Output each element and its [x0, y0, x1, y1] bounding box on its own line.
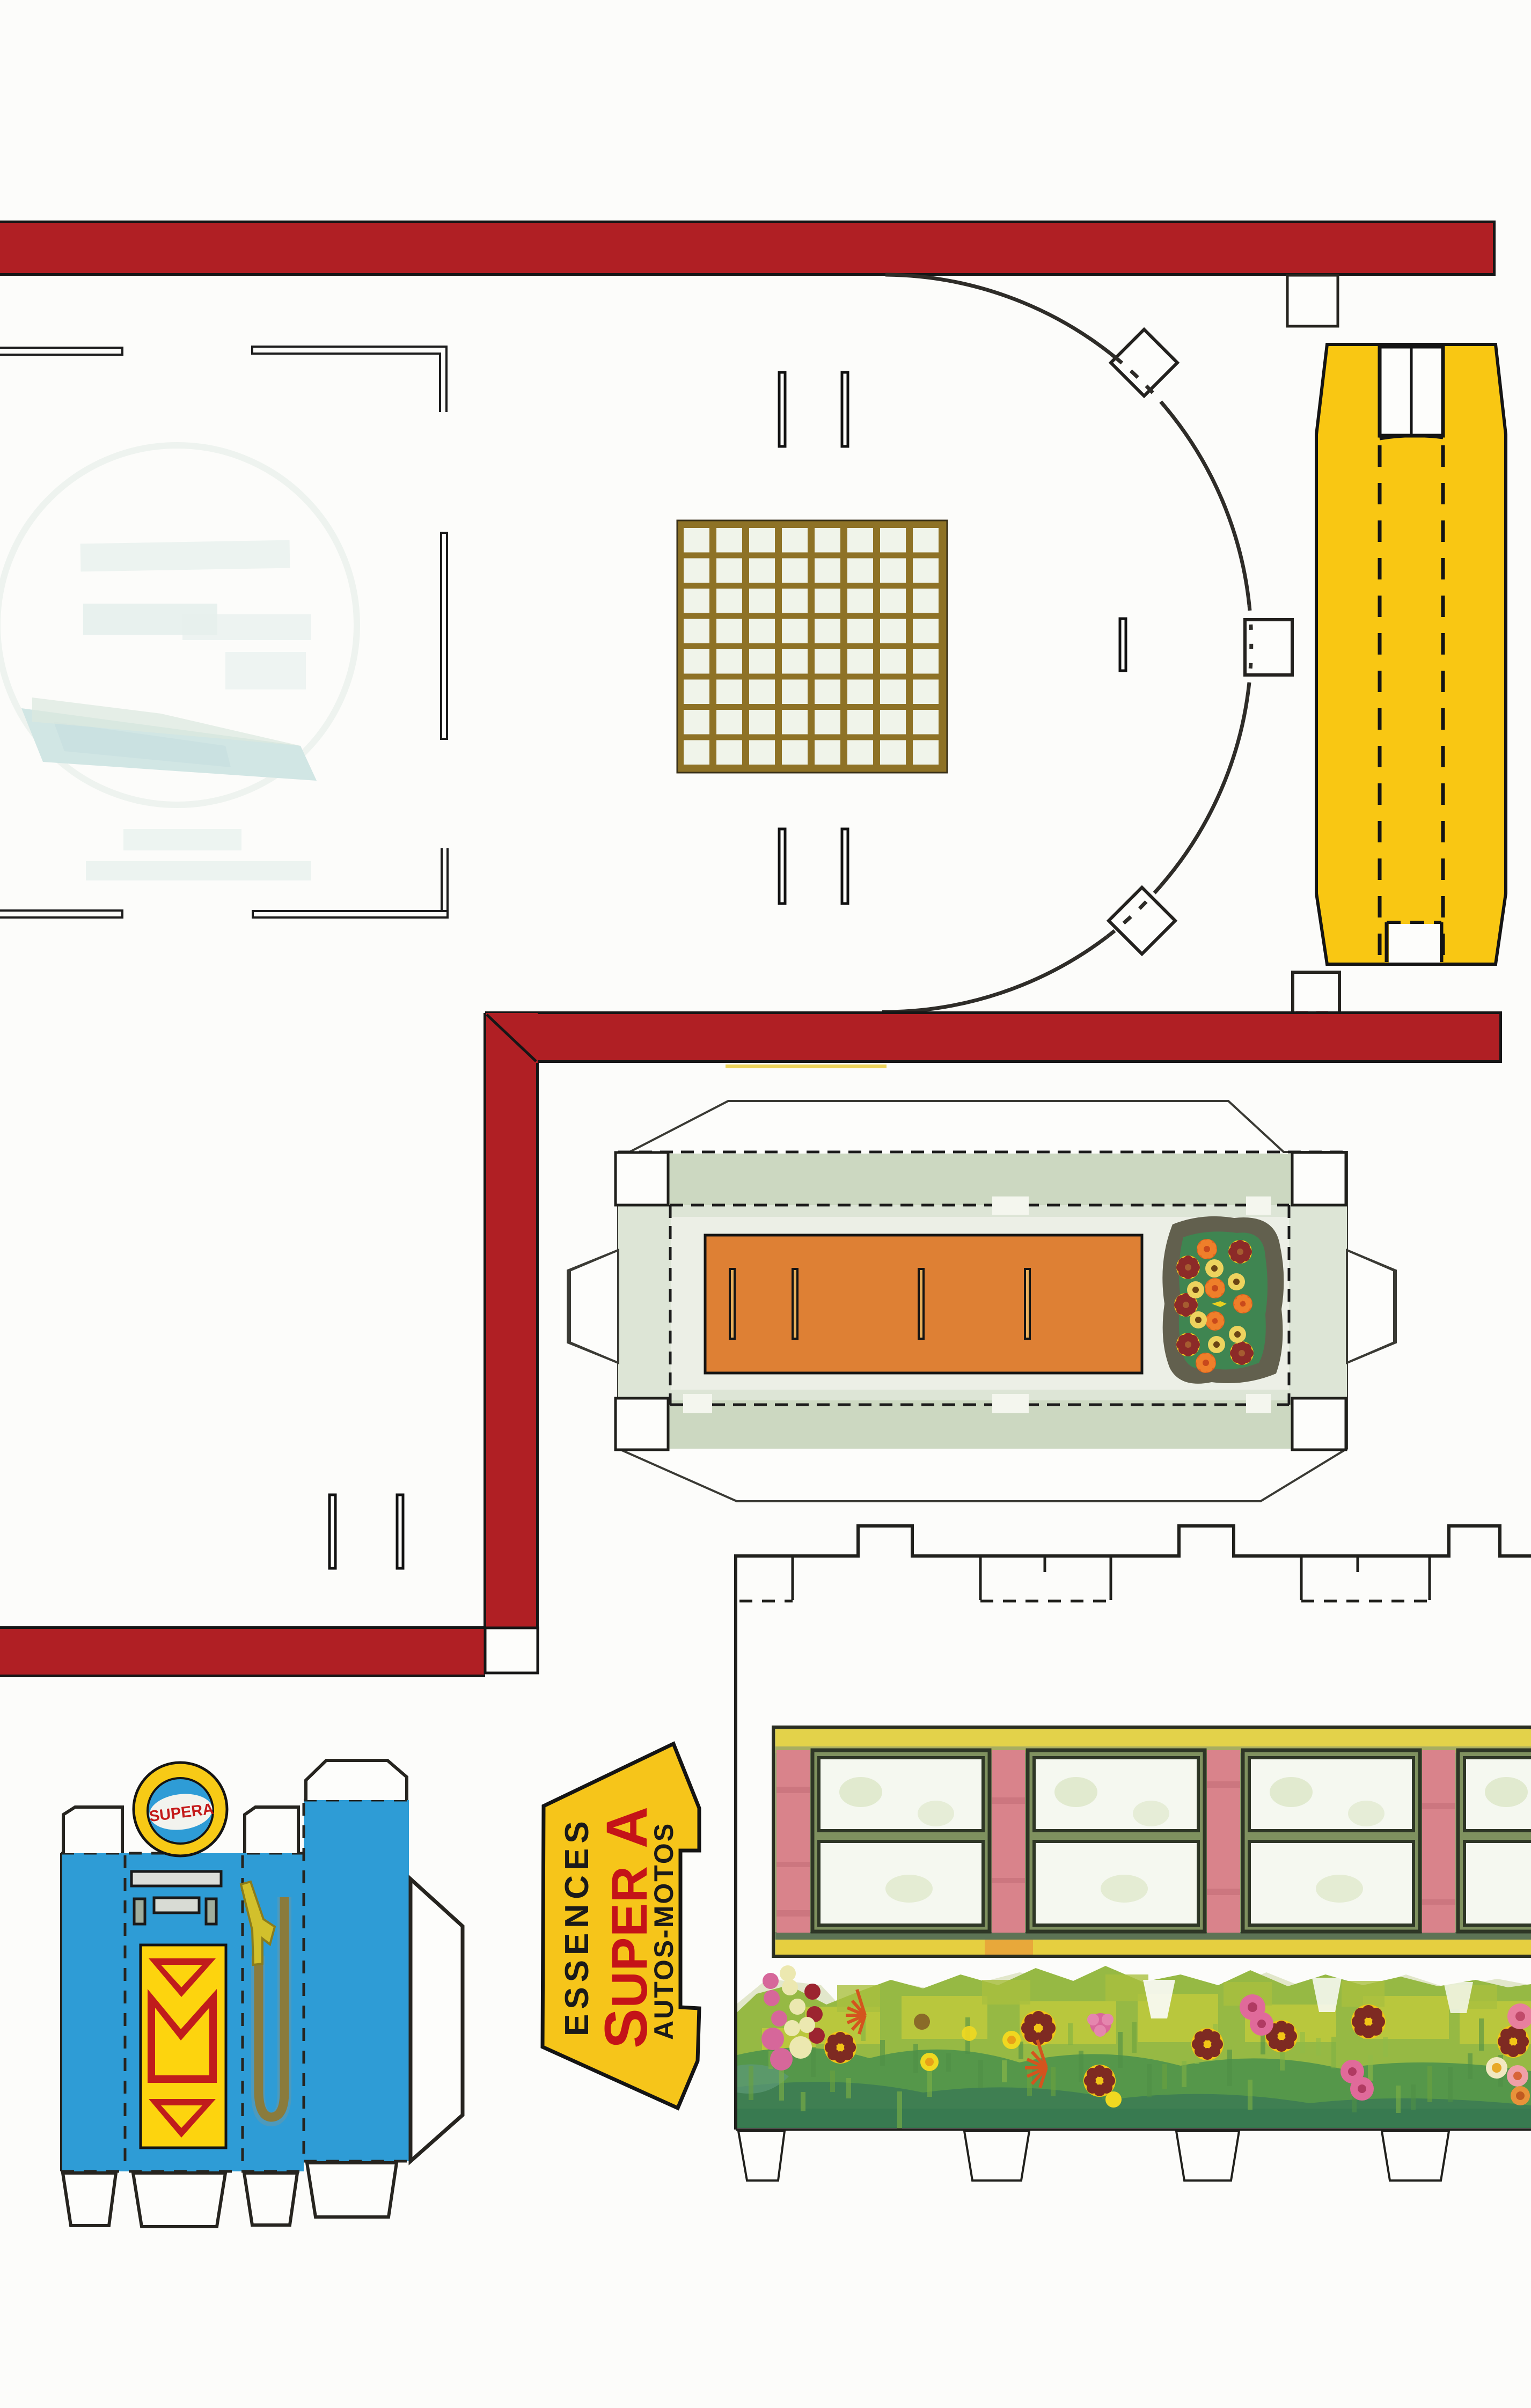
svg-text:ESSENCES: ESSENCES	[559, 1816, 596, 2036]
svg-text:AUTOS-MOTOS: AUTOS-MOTOS	[649, 1822, 679, 2040]
